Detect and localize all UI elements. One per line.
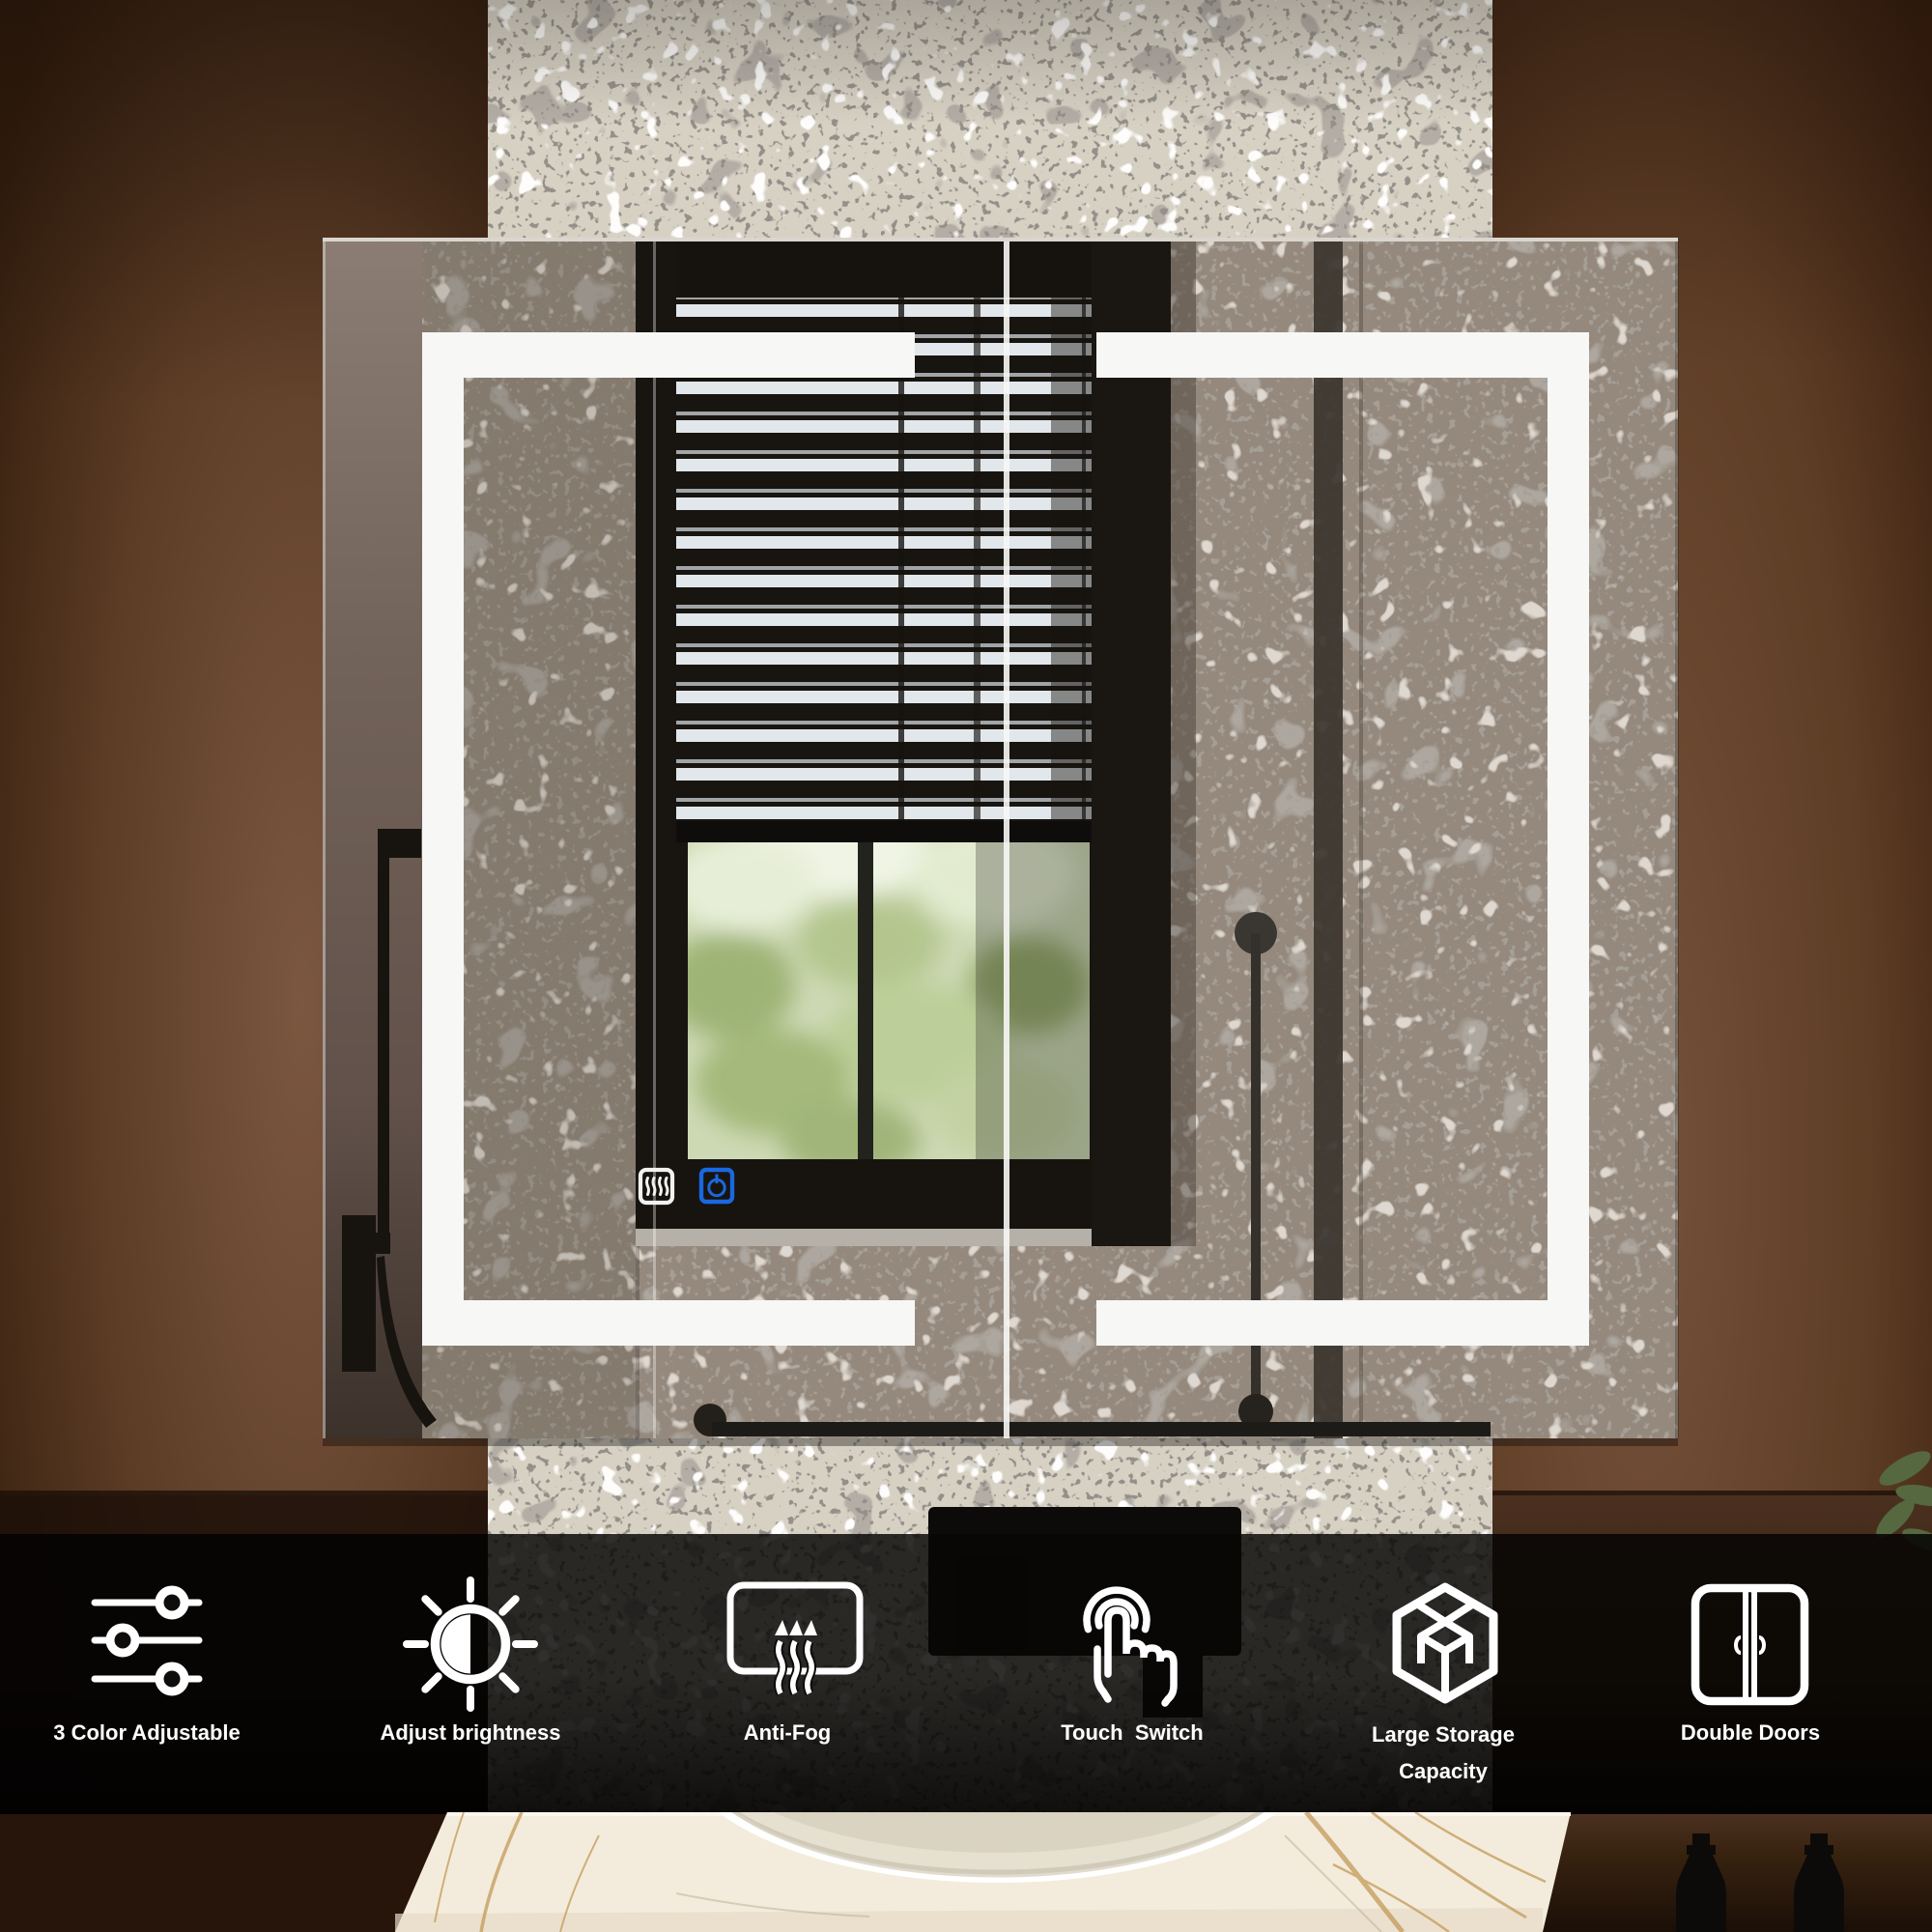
svg-text:3 Color Adjustable: 3 Color Adjustable <box>53 1720 241 1745</box>
svg-text:Touch Switch: Touch Switch <box>1061 1720 1203 1745</box>
svg-text:Large Storage: Large Storage <box>1372 1722 1515 1747</box>
svg-text:Capacity: Capacity <box>1399 1759 1488 1783</box>
svg-text:Anti-Fog: Anti-Fog <box>744 1720 831 1745</box>
svg-text:Adjust brightness: Adjust brightness <box>380 1720 560 1745</box>
svg-text:Double Doors: Double Doors <box>1681 1720 1820 1745</box>
